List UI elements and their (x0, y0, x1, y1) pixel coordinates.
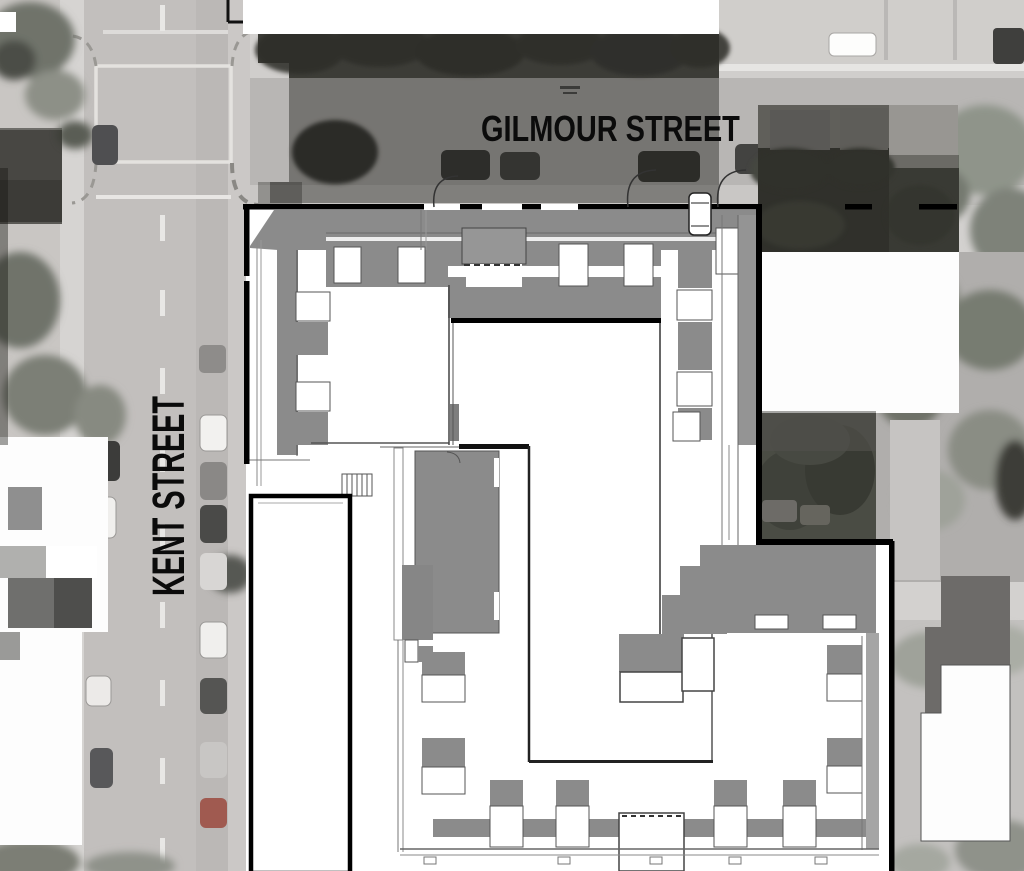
svg-text:KENT STREET: KENT STREET (145, 396, 195, 596)
svg-text:GILMOUR STREET: GILMOUR STREET (481, 108, 740, 149)
